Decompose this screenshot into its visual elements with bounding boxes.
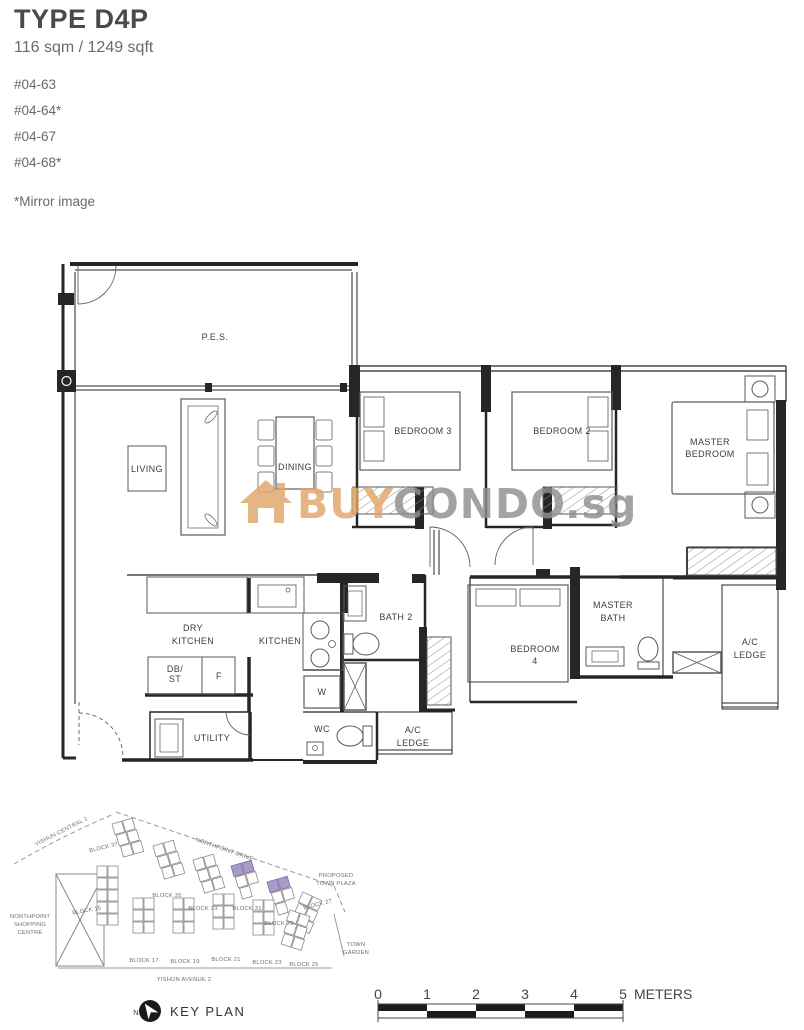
room-label-master-bath: BATH bbox=[601, 613, 626, 623]
scale-tick: 2 bbox=[472, 986, 480, 1002]
hall-closet bbox=[427, 637, 451, 705]
room-label-master-bedroom: BEDROOM bbox=[685, 449, 734, 459]
dining-table bbox=[258, 417, 332, 492]
room-label-master-bath: MASTER bbox=[593, 600, 633, 610]
block-label-17: BLOCK 17 bbox=[129, 958, 158, 964]
place-label-town-plaza: TOWN PLAZA bbox=[316, 881, 356, 887]
room-label-pes: P.E.S. bbox=[202, 332, 229, 342]
room-label-dining: DINING bbox=[278, 462, 312, 472]
scale-tick: 5 bbox=[619, 986, 627, 1002]
room-label-living: LIVING bbox=[131, 464, 163, 474]
road-label-northpoint-drive: NORTHPOINT DRIVE bbox=[195, 837, 254, 862]
master-bath-fixtures bbox=[586, 637, 659, 669]
road-label-yishun-avenue-2: YISHUN AVENUE 2 bbox=[157, 977, 211, 983]
room-label-ac-ledge-1: LEDGE bbox=[397, 738, 430, 748]
bath2-fixtures bbox=[344, 586, 379, 655]
dry-kitchen-counter bbox=[147, 577, 247, 613]
kitchen-counter bbox=[247, 577, 343, 670]
room-label-ac-ledge-1: A/C bbox=[405, 725, 421, 735]
place-label-shopping-centre: NORTHPOINT bbox=[10, 914, 50, 920]
room-label-master-bedroom: MASTER bbox=[690, 437, 730, 447]
room-label-ac-ledge-2: A/C bbox=[742, 637, 758, 647]
key-plan: YISHUN CENTRAL 1 NORTHPOINT DRIVE YISHUN… bbox=[10, 812, 369, 1022]
room-label-utility: UTILITY bbox=[194, 733, 230, 743]
room-label-bedroom4: 4 bbox=[532, 656, 537, 666]
block-label-31: BLOCK 31 bbox=[232, 906, 261, 912]
bed-master bbox=[672, 376, 775, 518]
place-label-town-plaza: PROPOSED bbox=[319, 873, 353, 879]
room-label-bedroom2: BEDROOM 2 bbox=[533, 426, 591, 436]
room-label-wc: WC bbox=[314, 724, 330, 734]
block-clusters bbox=[97, 818, 324, 951]
scale-unit: METERS bbox=[634, 986, 692, 1002]
room-label-bedroom4: BEDROOM bbox=[510, 644, 559, 654]
place-label-town-garden: GARDEN bbox=[343, 950, 369, 956]
floorplan-page: TYPE D4P 116 sqm / 1249 sqft #04-63 #04-… bbox=[0, 0, 804, 1030]
block-label-23: BLOCK 23 bbox=[252, 960, 281, 966]
block-label-35: BLOCK 35 bbox=[152, 893, 181, 899]
room-label-dry-kitchen: DRY bbox=[183, 623, 203, 633]
wardrobe-master bbox=[687, 548, 776, 575]
wardrobe-bedroom2 bbox=[543, 487, 617, 514]
room-label-bedroom3: BEDROOM 3 bbox=[394, 426, 452, 436]
bed-bedroom4 bbox=[468, 585, 568, 682]
room-label-fridge: F bbox=[216, 671, 222, 681]
key-plan-title: KEY PLAN bbox=[170, 1004, 245, 1019]
place-label-town-garden: TOWN bbox=[347, 942, 365, 948]
scale-bar: 0 1 2 3 4 5 METERS bbox=[374, 986, 692, 1022]
place-label-shopping-centre: CENTRE bbox=[17, 930, 42, 936]
block-label-33: BLOCK 33 bbox=[188, 906, 217, 912]
room-label-dry-kitchen: KITCHEN bbox=[172, 636, 214, 646]
room-label-washer: W bbox=[318, 687, 327, 697]
sofa bbox=[181, 399, 225, 535]
room-label-db-st: ST bbox=[169, 674, 181, 684]
block-label-19: BLOCK 19 bbox=[170, 959, 199, 965]
block-label-25: BLOCK 25 bbox=[289, 962, 318, 968]
block-31-highlighted bbox=[231, 860, 262, 900]
room-label-ac-ledge-2: LEDGE bbox=[734, 650, 767, 660]
place-label-shopping-centre: SHOPPING bbox=[14, 922, 46, 928]
room-label-db-st: DB/ bbox=[167, 664, 183, 674]
north-label: N bbox=[133, 1008, 138, 1017]
block-label-21: BLOCK 21 bbox=[211, 957, 240, 963]
scale-tick: 3 bbox=[521, 986, 529, 1002]
road-label-yishun-central-1: YISHUN CENTRAL 1 bbox=[34, 816, 89, 848]
room-label-kitchen: KITCHEN bbox=[259, 636, 301, 646]
furniture bbox=[128, 376, 776, 757]
scale-tick: 4 bbox=[570, 986, 578, 1002]
north-compass-icon: N bbox=[133, 1000, 161, 1022]
block-label-37: BLOCK 37 bbox=[89, 842, 119, 855]
wardrobe-bedroom3 bbox=[353, 487, 433, 514]
utility-bench bbox=[155, 719, 183, 757]
floorplan-drawing: P.E.S. LIVING DINING BEDROOM 3 BEDROOM 2… bbox=[0, 0, 804, 1030]
scale-tick: 1 bbox=[423, 986, 431, 1002]
scale-tick: 0 bbox=[374, 986, 382, 1002]
room-label-bath2: BATH 2 bbox=[379, 612, 412, 622]
block-label-29: BLOCK 29 bbox=[264, 921, 293, 927]
doors bbox=[78, 266, 533, 757]
